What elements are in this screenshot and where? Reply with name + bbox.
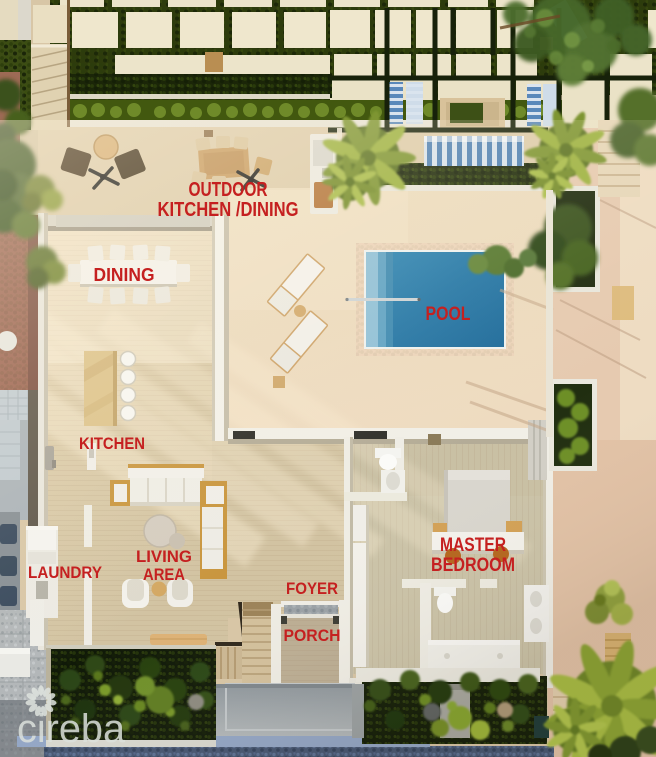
svg-text:AREA: AREA [143,565,185,584]
svg-text:cireba: cireba [17,707,126,751]
svg-text:LIVING: LIVING [136,547,192,566]
svg-text:MASTER: MASTER [440,535,506,556]
svg-text:PORCH: PORCH [284,626,341,645]
svg-text:DINING: DINING [94,265,155,285]
svg-text:BEDROOM: BEDROOM [431,555,515,576]
svg-text:FOYER: FOYER [286,579,338,598]
svg-text:KITCHEN: KITCHEN [79,434,145,453]
svg-text:OUTDOOR: OUTDOOR [189,179,268,201]
svg-text:KITCHEN /DINING: KITCHEN /DINING [158,199,299,221]
svg-text:LAUNDRY: LAUNDRY [28,563,103,582]
svg-text:POOL: POOL [426,304,471,325]
